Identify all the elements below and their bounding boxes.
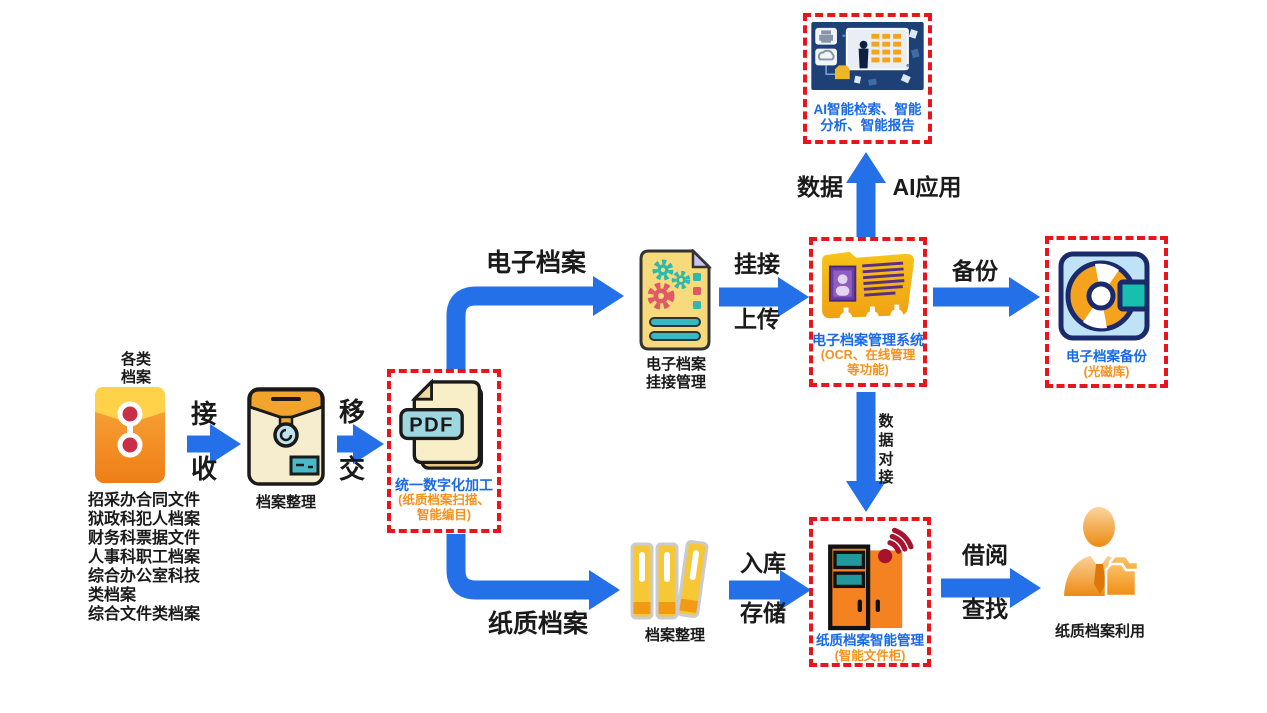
smart-cabinet-icon xyxy=(820,522,920,632)
link-upload-label-top: 挂接 xyxy=(724,252,790,277)
ai-title-1: AI智能检索、智能 xyxy=(814,102,922,118)
digitize-subtitle-1: (纸质档案扫描、 xyxy=(398,493,490,508)
data-label: 数据 xyxy=(789,175,851,200)
envelope-source-icon xyxy=(94,386,166,484)
receive-label-top: 接 xyxy=(184,400,224,429)
borrow-label-bottom: 查找 xyxy=(952,597,1018,622)
ems-subtitle-1: (OCR、在线管理 xyxy=(821,348,915,363)
person-user-icon xyxy=(1058,504,1148,616)
usage-folder xyxy=(1106,556,1138,596)
pdf-badge-text: PDF xyxy=(409,415,454,437)
electronic-branch-label: 电子档案 xyxy=(478,250,594,278)
transfer-label-bottom: 交 xyxy=(332,455,372,484)
optical-disc-icon xyxy=(1057,250,1157,342)
cabinet-node-box: 纸质档案智能管理 (智能文件柜) xyxy=(809,517,931,667)
ems-title: 电子档案管理系统 xyxy=(812,332,924,348)
backup-subtitle: (光磁库) xyxy=(1084,365,1130,380)
ai-app-label: AI应用 xyxy=(884,175,970,200)
link-manage-label: 电子档案 挂接管理 xyxy=(636,356,716,391)
book-3 xyxy=(677,541,707,617)
paper-branch-label: 纸质档案 xyxy=(480,611,596,639)
store-label-top: 入库 xyxy=(730,551,796,576)
source-doc-list: 招采办合同文件 狱政科犯人档案 财务科票据文件 人事科职工档案 综合办公室科技 … xyxy=(88,491,200,624)
usage-label: 纸质档案利用 xyxy=(1048,623,1152,641)
organize-in-label: 档案整理 xyxy=(247,494,325,512)
ai-title-2: 分析、智能报告 xyxy=(820,118,915,134)
borrow-label-top: 借阅 xyxy=(952,543,1018,568)
ai-illustration xyxy=(811,22,924,90)
envelope-organize-icon xyxy=(247,387,325,486)
digitize-subtitle-2: 智能编目) xyxy=(417,508,471,523)
cabinet-subtitle: (智能文件柜) xyxy=(835,649,906,664)
backup-node-box: 电子档案备份 (光磁库) xyxy=(1045,236,1168,388)
arrow-electronic-branch xyxy=(456,296,594,372)
gears-document-icon xyxy=(637,249,713,353)
pdf-file-icon: PDF xyxy=(399,377,489,475)
receive-label-bottom: 收 xyxy=(184,455,224,484)
backup-title: 电子档案备份 xyxy=(1066,349,1147,365)
book-1 xyxy=(632,544,652,618)
books-icon xyxy=(630,538,714,624)
arrow-paper-branch xyxy=(456,534,590,590)
folder-glyph xyxy=(835,65,850,79)
link-upload-label-bottom: 上传 xyxy=(724,307,790,332)
organize-out-label: 档案整理 xyxy=(638,627,712,645)
ems-folder-icon xyxy=(816,247,920,329)
digitize-node-box: PDF 统一数字化加工 (纸质档案扫描、 智能编目) xyxy=(387,369,501,533)
data-connect-label: 数据对接 xyxy=(877,413,895,488)
cabinet-title: 纸质档案智能管理 xyxy=(816,633,924,649)
source-title: 各类 档案 xyxy=(98,351,174,386)
ai-node-box: AI智能检索、智能 分析、智能报告 xyxy=(803,13,932,144)
archive-workflow-diagram: 各类 档案 招采办合同文件 狱政科犯人档案 财务科票据文件 人事科职工档案 综合… xyxy=(0,0,1267,713)
ems-node-box: 电子档案管理系统 (OCR、在线管理 等功能) xyxy=(809,237,927,387)
ems-subtitle-2: 等功能) xyxy=(847,363,889,378)
store-label-bottom: 存储 xyxy=(730,601,796,626)
digitize-title: 统一数字化加工 xyxy=(395,477,493,493)
book-2 xyxy=(657,544,677,618)
printer-glyph xyxy=(819,30,833,42)
transfer-label-top: 移 xyxy=(332,398,372,427)
backup-arrow-label: 备份 xyxy=(942,259,1008,284)
